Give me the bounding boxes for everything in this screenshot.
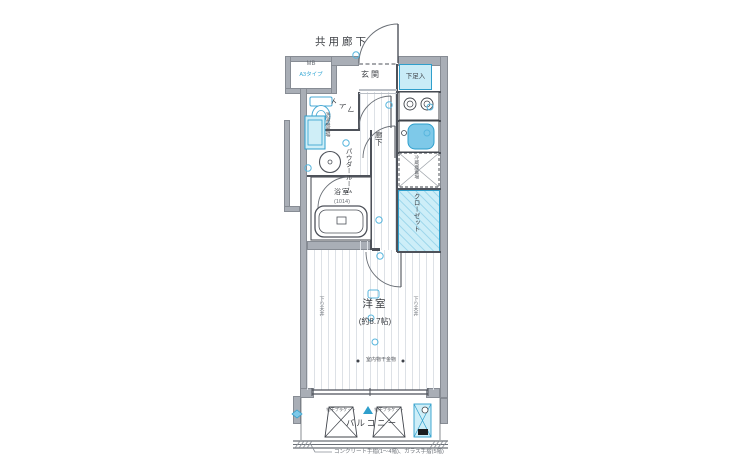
unit-type-label: A3タイプ [291,71,331,79]
shoe-cabinet-label: 下足入 [399,64,432,90]
washer-place-label: 洗濯機置場 [324,112,330,156]
mb-label: MB [293,60,329,69]
bracket-label-2: 物干ブラケット [375,408,403,413]
lowered-ceiling-left: 下り天井 [318,296,324,332]
balcony-marker-diamond [292,410,302,418]
kitchen-sink [408,124,434,149]
bracket-label-1: 物干ブラケット [327,408,355,413]
balcony-drain-box [418,429,428,435]
powder-room-label: パウダールーム [344,148,351,222]
lowered-ceiling-right: 下り天井 [412,296,418,332]
room-size-label: (約8.7帖) [347,317,403,327]
fridge-place-label: 冷蔵庫置場 [413,155,418,187]
bath-size-label: (1014) [324,198,360,206]
railing-note: コンクリート手摺(1〜4階)、ガラス手摺(5階) [334,449,444,455]
entrance-label: 玄関 [361,71,381,80]
balcony-hose-bib [422,407,428,413]
balcony-marker-triangle [363,406,373,414]
toilet-door-arc [359,96,391,128]
floorplan-canvas: 共用廊下 MB A3タイプ 玄関 下足入 トイレ 洗濯機置場 パウダールーム 廊… [0,0,730,470]
closet-label: クローゼット [412,193,419,251]
bath-label: 浴室 [326,188,358,197]
indoor-laundry-label: 室内物干金物 [360,357,402,365]
basin [320,152,341,173]
hallway-label: 廊下 [374,131,382,159]
common-corridor-label: 共用廊下 [315,37,369,49]
room-door-arc [366,252,401,287]
balcony-label: バルコニー [340,419,404,429]
room-label: 洋室 [352,299,398,311]
